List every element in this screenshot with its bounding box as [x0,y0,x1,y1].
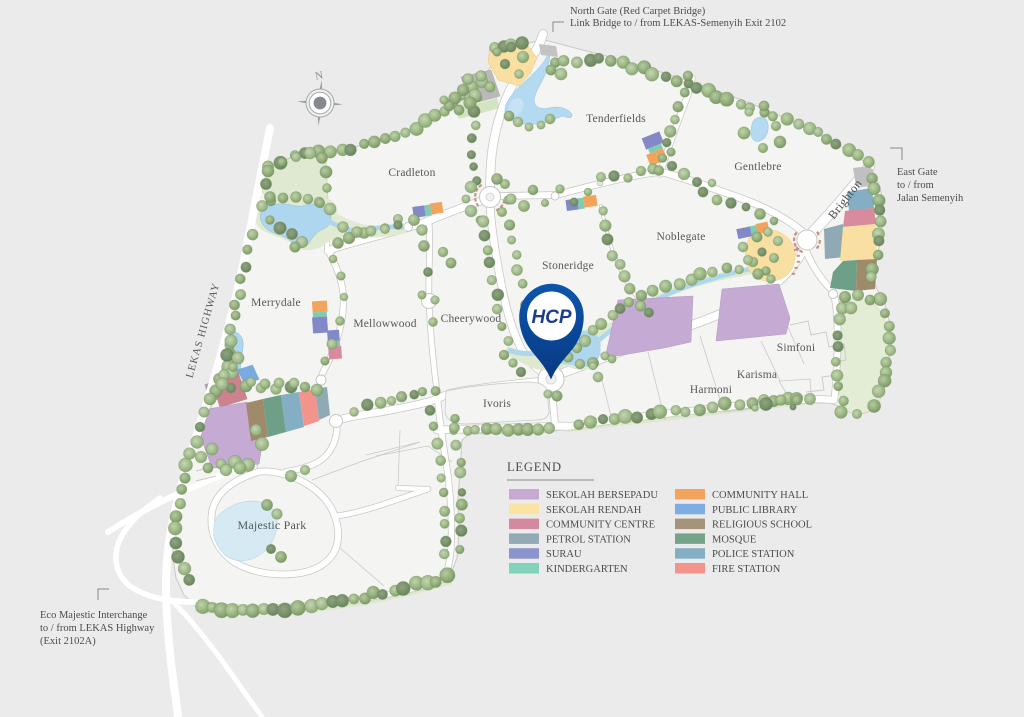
svg-text:Mellowwood: Mellowwood [353,318,416,330]
svg-text:Gentlebre: Gentlebre [734,161,781,173]
svg-text:KINDERGARTEN: KINDERGARTEN [546,564,628,575]
svg-text:East Gate: East Gate [897,167,938,178]
svg-text:RELIGIOUS SCHOOL: RELIGIOUS SCHOOL [712,520,812,531]
svg-text:Majestic Park: Majestic Park [238,518,307,532]
svg-text:PUBLIC LIBRARY: PUBLIC LIBRARY [712,505,798,516]
svg-text:LEGEND: LEGEND [507,460,562,474]
svg-text:Eco Majestic Interchange: Eco Majestic Interchange [40,610,148,621]
svg-text:SEKOLAH BERSEPADU: SEKOLAH BERSEPADU [546,490,658,501]
svg-text:FIRE STATION: FIRE STATION [712,564,781,575]
svg-text:North Gate (Red Carpet Bridge): North Gate (Red Carpet Bridge) [570,6,706,17]
svg-text:Noblegate: Noblegate [656,231,705,243]
svg-text:Jalan Semenyih: Jalan Semenyih [897,193,964,204]
svg-text:PETROL STATION: PETROL STATION [546,534,631,545]
svg-text:Harmoni: Harmoni [690,384,732,396]
svg-text:Tenderfields: Tenderfields [586,113,646,125]
svg-text:SEKOLAH RENDAH: SEKOLAH RENDAH [546,505,642,516]
svg-text:Cradleton: Cradleton [388,167,435,179]
svg-text:HCP: HCP [531,307,571,328]
svg-text:Cheerywood: Cheerywood [441,313,502,325]
svg-text:Simfoni: Simfoni [777,342,815,354]
svg-text:COMMUNITY HALL: COMMUNITY HALL [712,490,808,501]
svg-text:Ivoris: Ivoris [483,398,511,410]
svg-text:MOSQUE: MOSQUE [712,534,756,545]
svg-text:POLICE STATION: POLICE STATION [712,549,795,560]
svg-text:COMMUNITY CENTRE: COMMUNITY CENTRE [546,520,655,531]
svg-text:to / from: to / from [897,180,934,191]
svg-text:SURAU: SURAU [546,549,582,560]
svg-text:(Exit 2102A): (Exit 2102A) [40,636,96,647]
svg-text:Karisma: Karisma [737,369,777,381]
svg-text:Merrydale: Merrydale [251,297,301,309]
svg-text:Stoneridge: Stoneridge [542,260,594,272]
svg-text:Link Bridge to / from LEKAS-Se: Link Bridge to / from LEKAS-Semenyih Exi… [570,18,786,29]
svg-text:to / from LEKAS Highway: to / from LEKAS Highway [40,623,155,634]
